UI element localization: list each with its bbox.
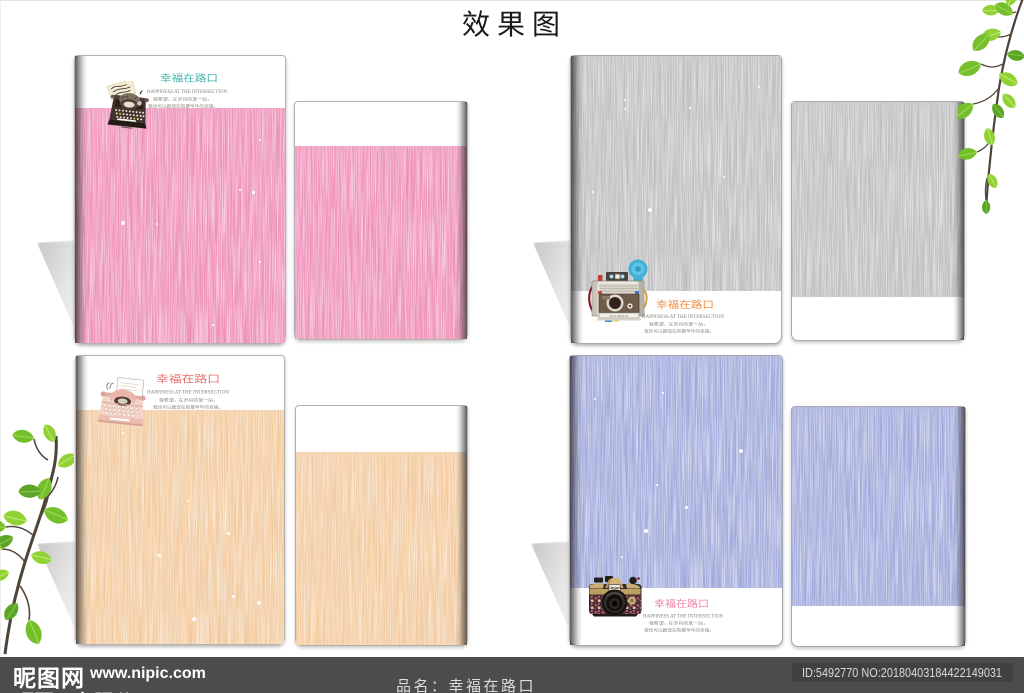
svg-text:我希望，在岁月的某一站，: 我希望，在岁月的某一站， (649, 321, 708, 328)
svg-text:我希望，在岁月的某一站，: 我希望，在岁月的某一站， (649, 620, 708, 627)
svg-text:幸福在路口: 幸福在路口 (654, 598, 709, 610)
svg-text:幸福在路口: 幸福在路口 (160, 73, 218, 85)
svg-text:我希望，在岁月的某一站，: 我希望，在岁月的某一站， (159, 397, 218, 404)
svg-text:我也可以跟现在和最早年的幸福。: 我也可以跟现在和最早年的幸福。 (148, 103, 218, 110)
svg-text:HAPPINESS AT THE INTERSECTION: HAPPINESS AT THE INTERSECTION (147, 391, 229, 396)
svg-text:幸福在路口: 幸福在路口 (156, 373, 220, 386)
svg-text:POLAROID: POLAROID (610, 314, 629, 318)
svg-text:HAPPINESS AT THE INTERSECTION: HAPPINESS AT THE INTERSECTION (643, 615, 723, 620)
svg-text:我也可以跟现在和最早年的幸福。: 我也可以跟现在和最早年的幸福。 (153, 404, 223, 411)
svg-text:HAPPINESS AT THE INTERSECTION: HAPPINESS AT THE INTERSECTION (642, 315, 724, 320)
svg-text:我也可以跟现在和最早年的幸福。: 我也可以跟现在和最早年的幸福。 (644, 627, 714, 634)
svg-text:Canon: Canon (608, 585, 621, 590)
svg-text:我希望，在岁月的某一站，: 我希望，在岁月的某一站， (153, 96, 212, 103)
svg-text:ID:5492770 NO:2018040318442214: ID:5492770 NO:20180403184422149031 (802, 665, 1002, 680)
svg-text:我也可以跟现在和最早年的幸福。: 我也可以跟现在和最早年的幸福。 (644, 328, 714, 335)
svg-text:HAPPINESS AT THE INTERSECTION: HAPPINESS AT THE INTERSECTION (147, 90, 227, 95)
svg-text:幸福在路口: 幸福在路口 (656, 299, 714, 311)
